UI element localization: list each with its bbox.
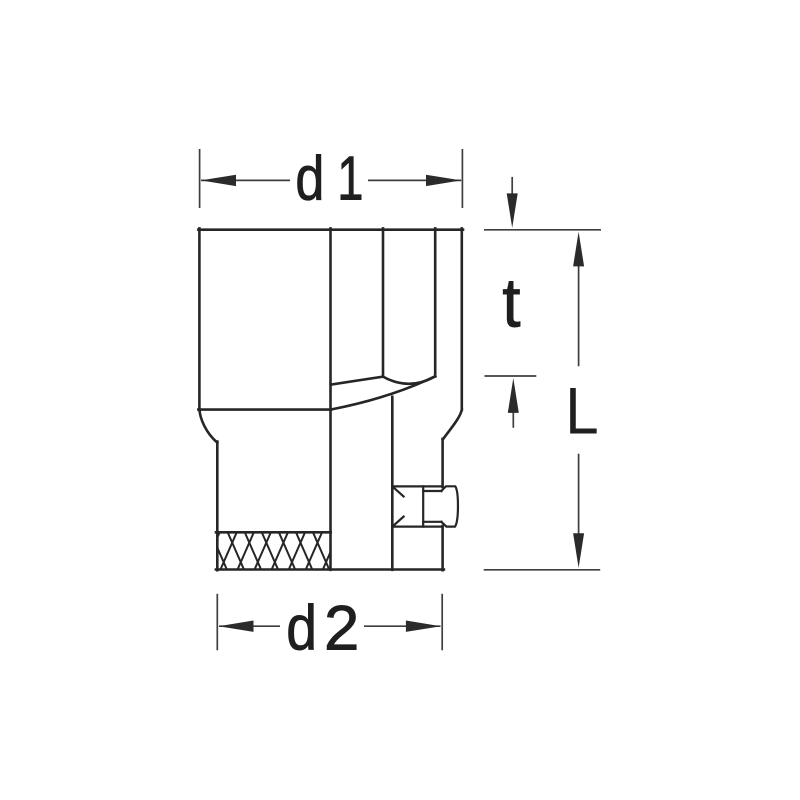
svg-text:1: 1: [337, 143, 363, 213]
svg-text:d: d: [295, 144, 324, 213]
svg-text:t: t: [502, 265, 520, 342]
svg-text:d: d: [286, 592, 317, 663]
svg-text:2: 2: [324, 593, 359, 663]
svg-text:L: L: [565, 375, 598, 448]
